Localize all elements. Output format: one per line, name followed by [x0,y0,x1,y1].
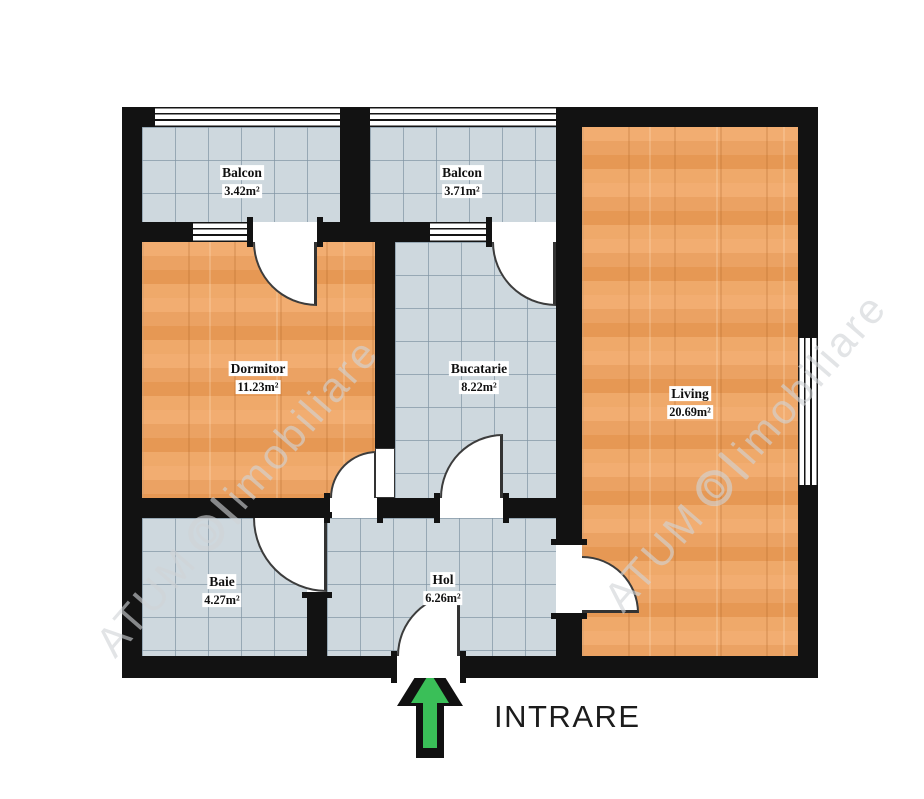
room-area: 3.71m² [442,184,481,198]
wall-top [122,107,155,127]
wall-right [798,485,818,678]
door-opening-hol-living [556,545,582,613]
door-jamb [551,539,587,545]
entrance-label: INTRARE [494,699,641,735]
door-jamb [247,217,253,247]
door-jamb [460,651,466,683]
wall-balcony [142,222,193,242]
room-name: Balcon [440,165,484,180]
window-balcony-1-top [155,107,340,127]
wall-balcony [317,222,430,242]
wall-top [556,107,818,127]
room-label-balcon-1: Balcon 3.42m² [220,164,264,200]
door-opening-bucatarie-hol [440,498,503,518]
door-jamb [434,493,440,523]
wall-hol-top [503,498,556,518]
door-opening-balcony-dormitor [253,222,317,242]
door-jamb [324,493,330,523]
wall-living-left [556,613,582,656]
door-jamb [503,493,509,523]
wall-bottom [460,656,818,678]
door-leaf-dormitor-hol [375,448,395,498]
wall-balcony-divider [340,107,370,242]
room-label-dormitor: Dormitor 11.23m² [229,360,288,396]
room-area: 4.27m² [202,593,241,607]
wall-right [798,107,818,338]
door-jamb [486,217,492,247]
room-name: Bucatarie [449,361,509,376]
floor-plan-canvas: Balcon 3.42m² Balcon 3.71m² Dormitor 11.… [0,0,924,799]
room-area: 6.26m² [423,591,462,605]
room-name: Balcon [220,165,264,180]
wall-bottom [122,656,397,678]
door-jamb [551,613,587,619]
room-area: 11.23m² [236,380,281,394]
door-opening-dormitor-hol [330,498,377,518]
room-label-bucatarie: Bucatarie 8.22m² [449,360,509,396]
wall-baie-hol [307,592,327,656]
window-living-right [798,338,818,485]
door-jamb [302,592,332,598]
door-jamb [556,217,562,247]
wall-living-left [556,107,582,545]
window-bucatarie-balcony [430,222,492,242]
window-balcony-2-top [370,107,556,127]
room-label-balcon-2: Balcon 3.71m² [440,164,484,200]
room-area: 20.69m² [667,405,713,419]
room-name: Hol [430,572,455,587]
room-name: Living [669,386,711,401]
room-name: Baie [207,574,237,589]
door-opening-entrance [397,656,460,678]
room-label-baie: Baie 4.27m² [202,573,241,609]
room-name: Dormitor [229,361,288,376]
window-dormitor-balcony [193,222,253,242]
door-jamb [391,651,397,683]
wall-hol-top [377,498,440,518]
door-opening-balcony-bucatarie [492,222,556,242]
room-area: 8.22m² [459,380,498,394]
door-jamb [302,512,332,518]
room-label-living: Living 20.69m² [667,385,713,421]
room-label-hol: Hol 6.26m² [423,571,462,607]
room-area: 3.42m² [222,184,261,198]
wall-left [122,107,142,678]
door-jamb [317,217,323,247]
